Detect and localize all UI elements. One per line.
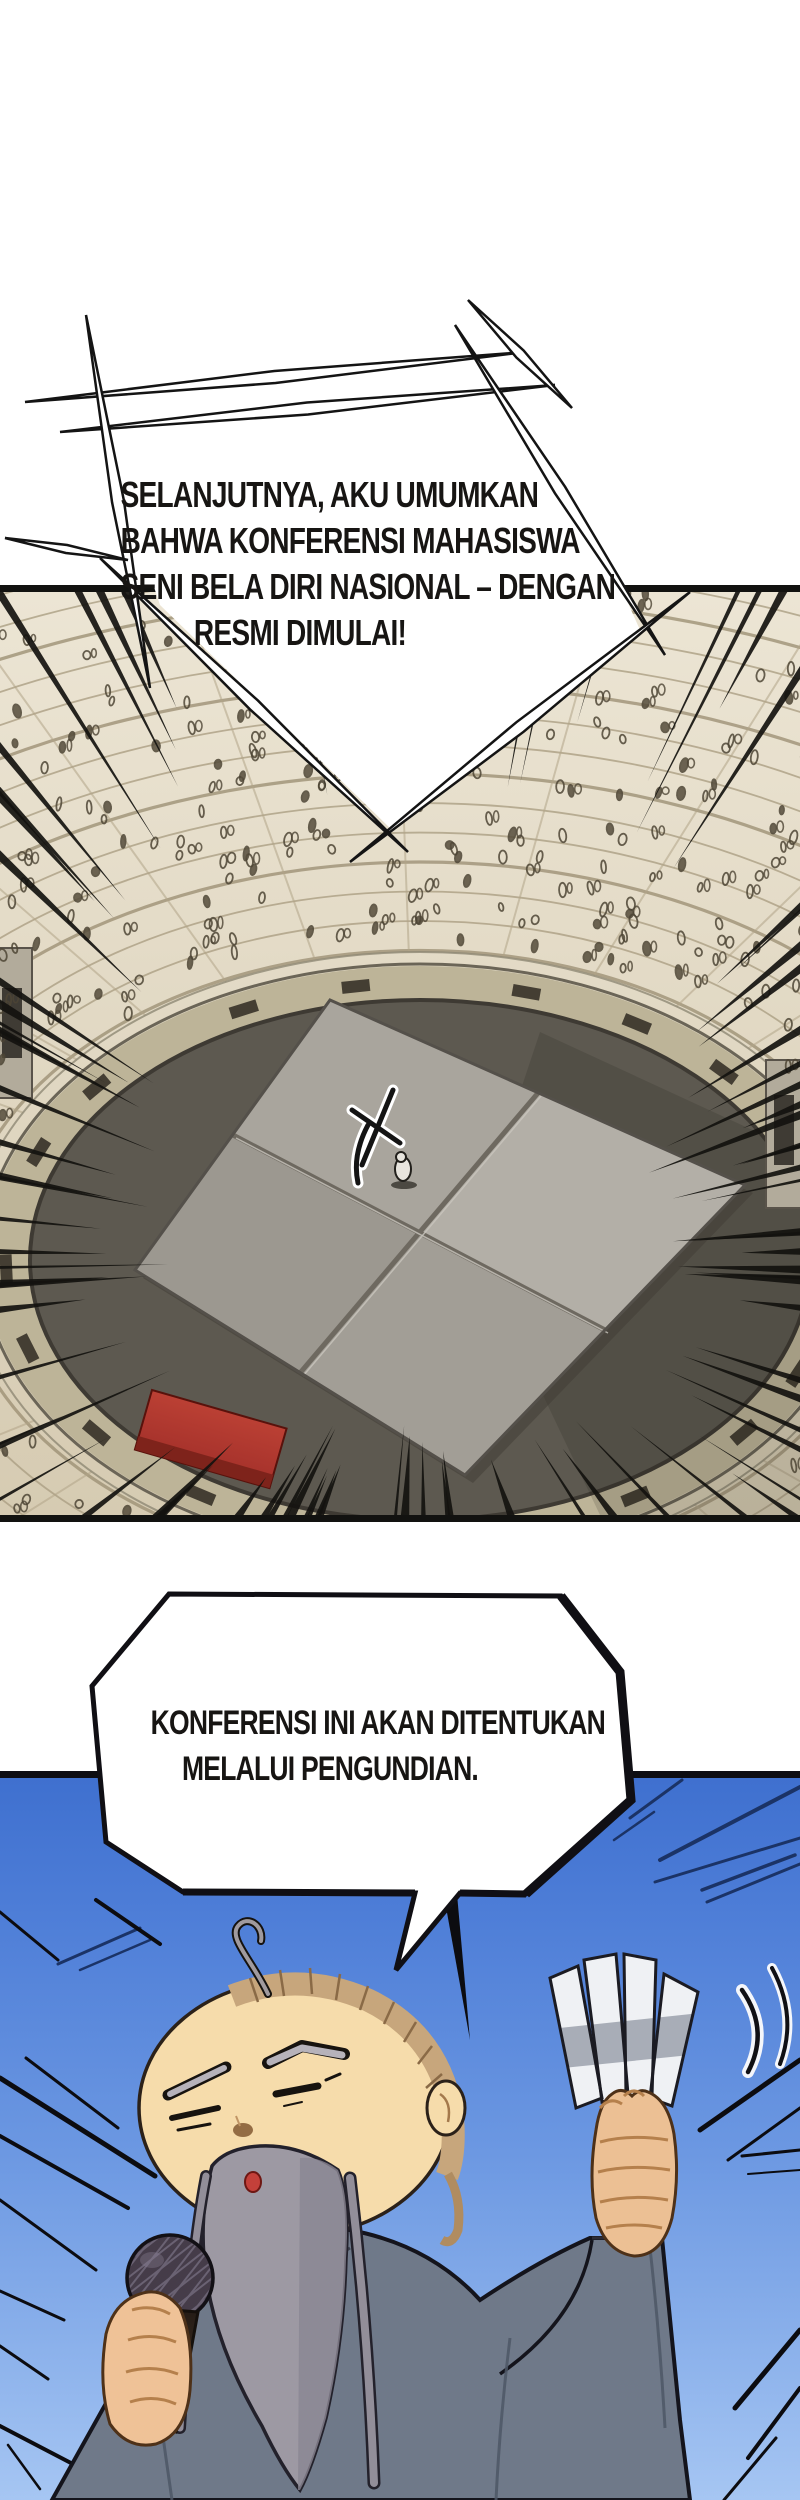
comic-page: SELANJUTNYA, AKU UMUMKAN BAHWA KONFERENS…: [0, 0, 800, 2500]
back-braid: [442, 2174, 459, 2242]
announcement-line: BAHWA KONFERENSI MAHASISWA: [121, 518, 480, 564]
arena-panel: [0, 585, 800, 1522]
announcer-scene: [0, 1778, 800, 2500]
announcer-character: [52, 1921, 710, 2500]
ear: [427, 2081, 465, 2135]
motion-curl-marks: [742, 1968, 787, 2072]
lottery-slips: [540, 1954, 710, 2108]
open-mouth-tongue: [245, 2172, 261, 2192]
sky-streaks: [58, 1780, 800, 1970]
announcement-line: SELANJUTNYA, AKU UMUMKAN: [121, 472, 480, 518]
right-hand-fist: [103, 2292, 191, 2445]
lottery-line: KONFERENSI INI AKAN DITENTUKAN: [151, 1700, 510, 1746]
announcer-panel: [0, 1771, 800, 2500]
left-hand-fist: [592, 2090, 677, 2256]
arena-scene: [0, 592, 800, 1515]
